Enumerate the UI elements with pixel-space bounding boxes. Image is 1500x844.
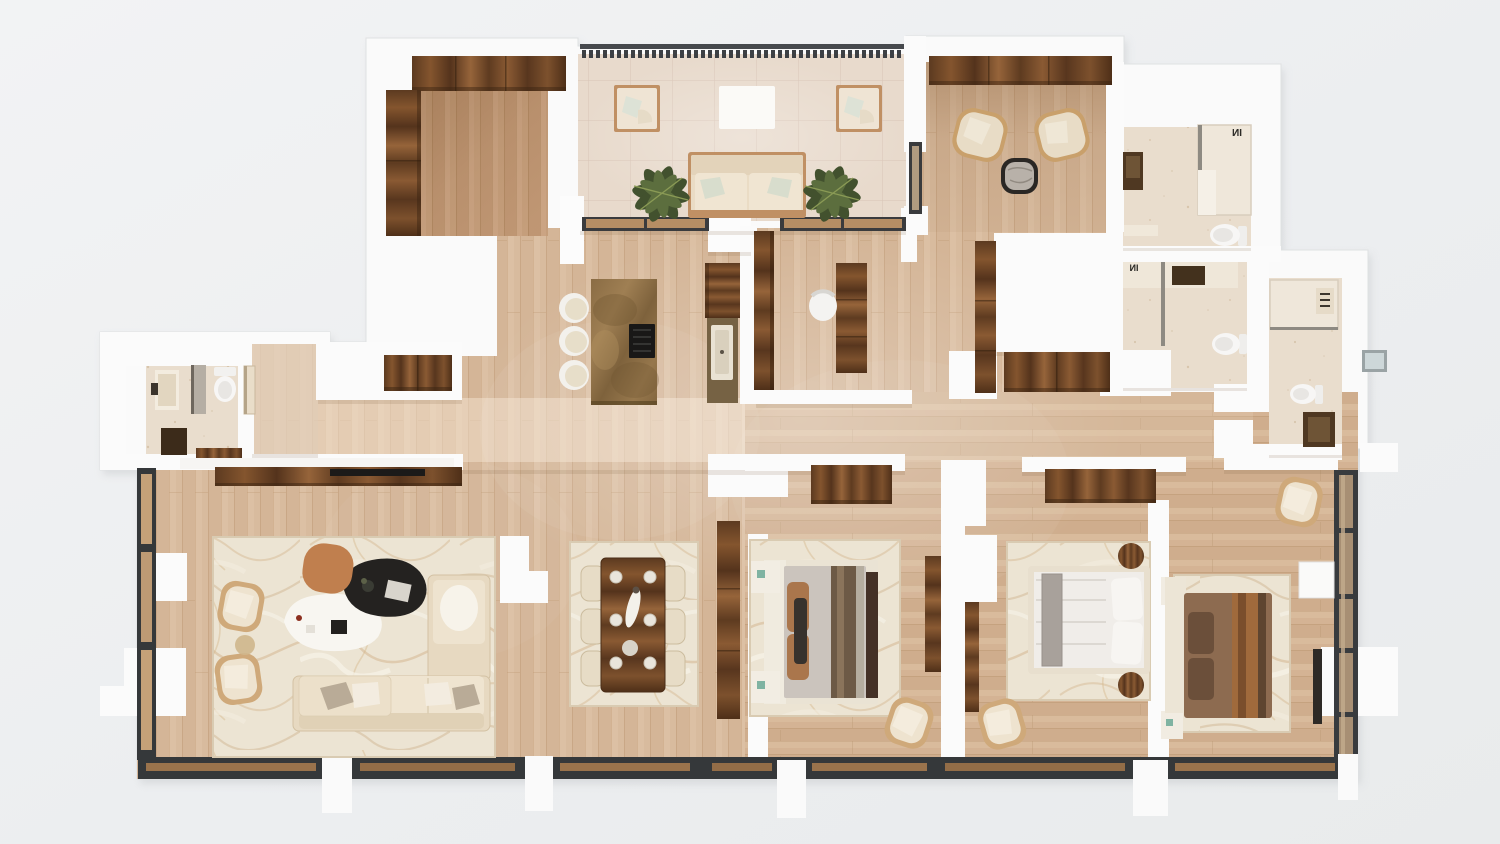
- svg-text:IN: IN: [1130, 263, 1139, 273]
- svg-text:IN: IN: [1232, 128, 1242, 139]
